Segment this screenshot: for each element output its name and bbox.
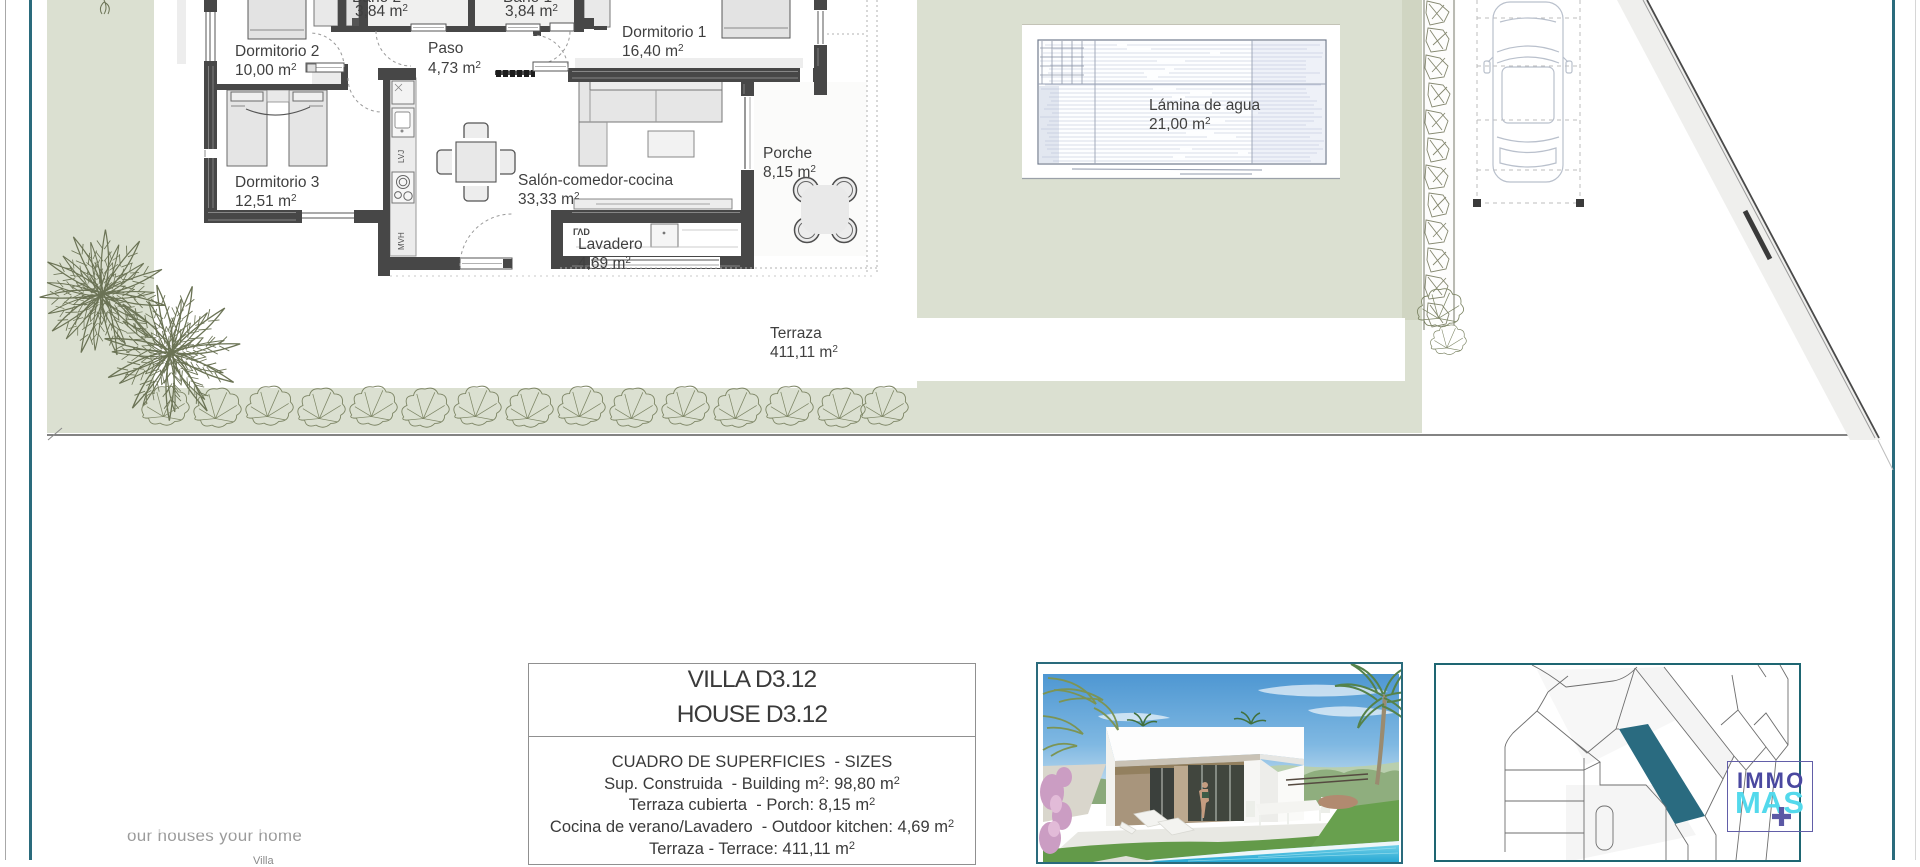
svg-text:33,33 m2: 33,33 m2 — [518, 191, 580, 208]
svg-text:3,84 m2: 3,84 m2 — [505, 3, 558, 20]
svg-text:Dormitorio 2: Dormitorio 2 — [235, 43, 319, 60]
svg-text:Lámina de agua: Lámina de agua — [1149, 97, 1261, 114]
svg-text:3,84 m2: 3,84 m2 — [355, 3, 408, 20]
svg-text:4,69 m2: 4,69 m2 — [578, 255, 631, 272]
svg-text:MVH: MVH — [397, 232, 406, 250]
svg-text:8,15 m2: 8,15 m2 — [763, 164, 816, 181]
svg-text:12,51 m2: 12,51 m2 — [235, 193, 297, 210]
svg-text:4,73 m2: 4,73 m2 — [428, 60, 481, 77]
svg-text:16,40 m2: 16,40 m2 — [622, 43, 684, 60]
svg-text:Lavadero: Lavadero — [578, 236, 643, 253]
svg-text:LVJ: LVJ — [397, 150, 406, 163]
svg-text:Porche: Porche — [763, 145, 812, 162]
svg-text:411,11 m2: 411,11 m2 — [770, 344, 838, 361]
svg-text:Dormitorio 3: Dormitorio 3 — [235, 174, 319, 191]
svg-text:Terraza: Terraza — [770, 325, 822, 342]
svg-text:21,00 m2: 21,00 m2 — [1149, 116, 1211, 133]
svg-text:Paso: Paso — [428, 40, 463, 57]
svg-text:Dormitorio 1: Dormitorio 1 — [622, 24, 706, 41]
svg-text:10,00 m2: 10,00 m2 — [235, 62, 297, 79]
svg-text:Salón-comedor-cocina: Salón-comedor-cocina — [518, 172, 673, 189]
